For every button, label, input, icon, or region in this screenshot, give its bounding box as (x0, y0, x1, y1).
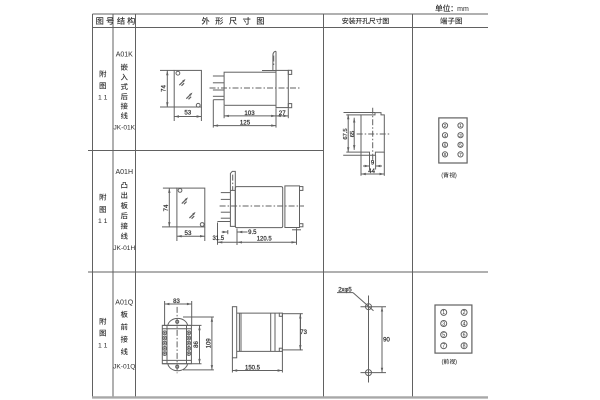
svg-text:9: 9 (371, 160, 375, 166)
svg-text:): ) (455, 172, 457, 179)
svg-text:67.5: 67.5 (343, 128, 349, 139)
svg-text:2: 2 (463, 310, 466, 316)
svg-text:7: 7 (442, 343, 445, 349)
svg-text:120.5: 120.5 (257, 236, 273, 242)
svg-text:A01H: A01H (115, 169, 133, 176)
svg-text:9.5: 9.5 (248, 230, 257, 236)
svg-text:4: 4 (463, 321, 466, 327)
svg-text:1 1: 1 1 (98, 343, 108, 350)
svg-text:A01Q: A01Q (115, 300, 133, 307)
svg-text:73: 73 (300, 330, 307, 336)
svg-text:1 1: 1 1 (98, 95, 108, 102)
svg-text:125: 125 (240, 120, 251, 127)
svg-text:90: 90 (383, 338, 390, 344)
svg-text:44: 44 (368, 169, 375, 175)
svg-text:): ) (455, 359, 457, 366)
svg-text:27: 27 (279, 110, 286, 117)
svg-text:31.5: 31.5 (212, 236, 224, 242)
svg-text:86: 86 (194, 341, 200, 348)
svg-text:8: 8 (463, 343, 466, 349)
svg-text:7: 7 (459, 152, 462, 158)
svg-text:109: 109 (207, 338, 213, 349)
svg-text:3: 3 (442, 321, 445, 327)
svg-text:4: 4 (444, 133, 447, 139)
svg-text:1: 1 (442, 310, 445, 316)
svg-text:1 1: 1 1 (98, 218, 108, 225)
svg-text:103: 103 (244, 110, 255, 117)
svg-text:A01K: A01K (116, 51, 133, 58)
svg-text:2: 2 (444, 123, 447, 129)
svg-text:6: 6 (463, 332, 466, 338)
svg-text:JK-01Q: JK-01Q (113, 364, 135, 371)
svg-text:3: 3 (459, 133, 462, 139)
svg-text:8: 8 (444, 152, 447, 158)
svg-text:JK-01H: JK-01H (113, 245, 135, 252)
svg-text:JK-01K: JK-01K (113, 125, 135, 132)
svg-text:5: 5 (442, 332, 445, 338)
svg-text:mm: mm (457, 6, 469, 13)
svg-text:65: 65 (350, 131, 356, 137)
svg-text:53: 53 (184, 109, 191, 116)
svg-text:150.5: 150.5 (245, 365, 261, 371)
svg-text:74: 74 (163, 204, 170, 211)
svg-text:53: 53 (185, 230, 192, 237)
svg-text:1: 1 (459, 123, 462, 129)
svg-text:74: 74 (160, 85, 167, 92)
svg-text:83: 83 (173, 299, 180, 305)
svg-text:6: 6 (444, 142, 447, 148)
svg-text:5: 5 (459, 142, 462, 148)
